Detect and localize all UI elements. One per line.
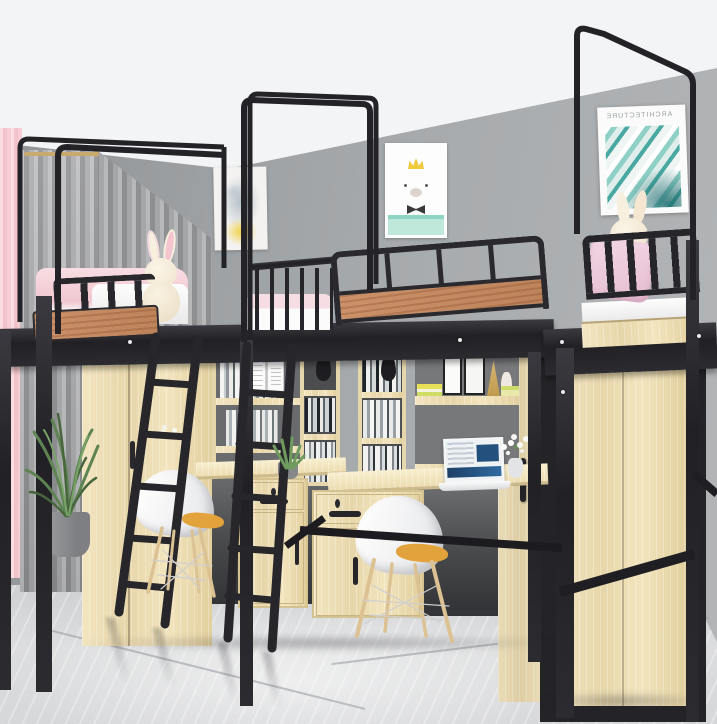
canopy-frame-left	[20, 139, 224, 334]
room-photo: ARCHITECTURE	[0, 0, 717, 724]
ladder-left	[119, 337, 198, 624]
cross-bars-right	[560, 474, 717, 592]
canopy-frame-middle	[244, 94, 376, 342]
metalwork-overlay	[0, 0, 717, 724]
chair-right-legs	[357, 560, 452, 641]
potted-plant-fronds	[26, 414, 98, 516]
ladder-middle	[228, 346, 292, 648]
canopy-frame-right	[577, 29, 693, 300]
under-desk-beam	[286, 518, 562, 548]
